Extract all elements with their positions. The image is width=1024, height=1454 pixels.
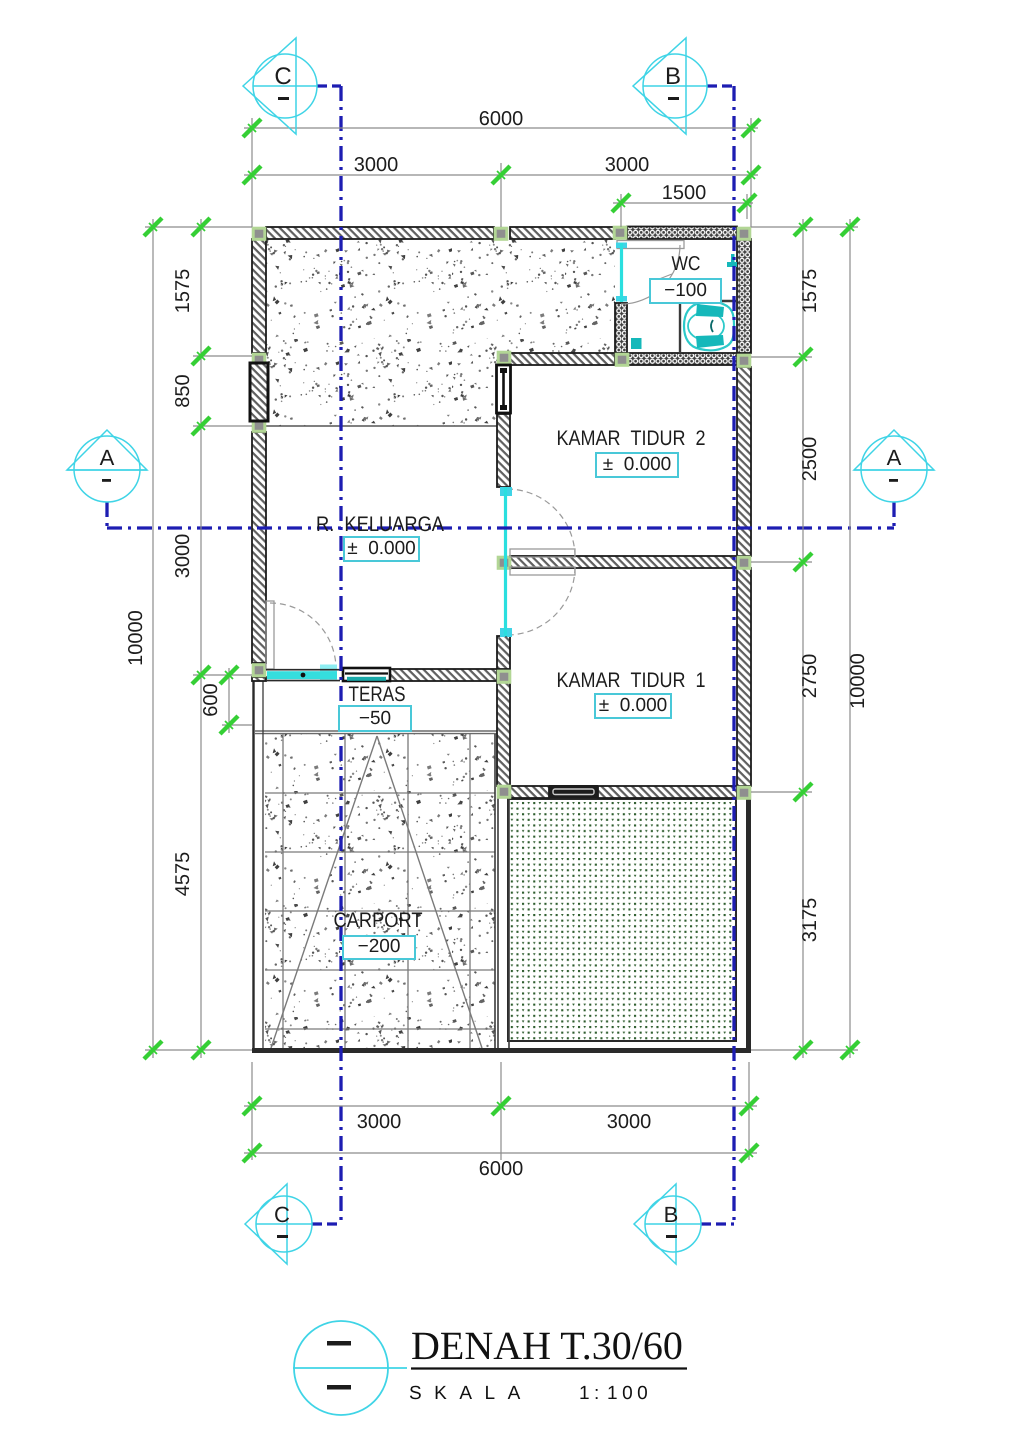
svg-text:3000: 3000 <box>354 154 399 176</box>
svg-text:−50: −50 <box>359 708 391 729</box>
svg-text:KAMAR TIDUR 2: KAMAR TIDUR 2 <box>557 427 706 450</box>
svg-text:100: 100 <box>607 1383 652 1404</box>
svg-text:3000: 3000 <box>605 154 650 176</box>
svg-text:KAMAR TIDUR 1: KAMAR TIDUR 1 <box>557 669 706 692</box>
svg-text:3000: 3000 <box>607 1111 652 1133</box>
svg-text:SKALA: SKALA <box>409 1383 533 1404</box>
svg-text:3000: 3000 <box>172 534 194 579</box>
svg-text:A: A <box>100 445 115 470</box>
svg-text:CARPORT: CARPORT <box>334 909 423 932</box>
svg-text:−200: −200 <box>358 936 401 957</box>
svg-text:−100: −100 <box>664 280 707 301</box>
svg-text:4575: 4575 <box>172 852 194 897</box>
svg-text:C: C <box>274 1202 290 1227</box>
svg-text:2750: 2750 <box>799 654 821 699</box>
svg-text:3175: 3175 <box>799 898 821 943</box>
svg-text:1500: 1500 <box>662 182 707 204</box>
svg-text:B: B <box>664 1202 679 1227</box>
svg-text:10000: 10000 <box>125 610 147 666</box>
svg-text:6000: 6000 <box>479 1158 524 1180</box>
svg-text:TERAS: TERAS <box>349 683 406 706</box>
svg-text:600: 600 <box>200 683 222 716</box>
svg-text:DENAH T.30/60: DENAH T.30/60 <box>411 1323 683 1368</box>
svg-text:10000: 10000 <box>847 653 869 709</box>
svg-text:1575: 1575 <box>799 269 821 314</box>
svg-text:3000: 3000 <box>357 1111 402 1133</box>
svg-text:B: B <box>665 63 681 90</box>
svg-text:850: 850 <box>172 374 194 407</box>
svg-text:1575: 1575 <box>172 269 194 314</box>
svg-text:2500: 2500 <box>799 437 821 482</box>
svg-text:6000: 6000 <box>479 108 524 130</box>
svg-text:± 0.000: ± 0.000 <box>603 454 672 475</box>
svg-text:A: A <box>887 445 902 470</box>
svg-text:R. KELUARGA: R. KELUARGA <box>316 513 444 536</box>
svg-text:WC: WC <box>672 253 701 275</box>
svg-text::: : <box>594 1383 599 1404</box>
svg-text:± 0.000: ± 0.000 <box>599 695 668 716</box>
svg-text:± 0.000: ± 0.000 <box>347 538 416 559</box>
svg-text:C: C <box>274 63 291 90</box>
svg-text:1: 1 <box>579 1383 590 1404</box>
